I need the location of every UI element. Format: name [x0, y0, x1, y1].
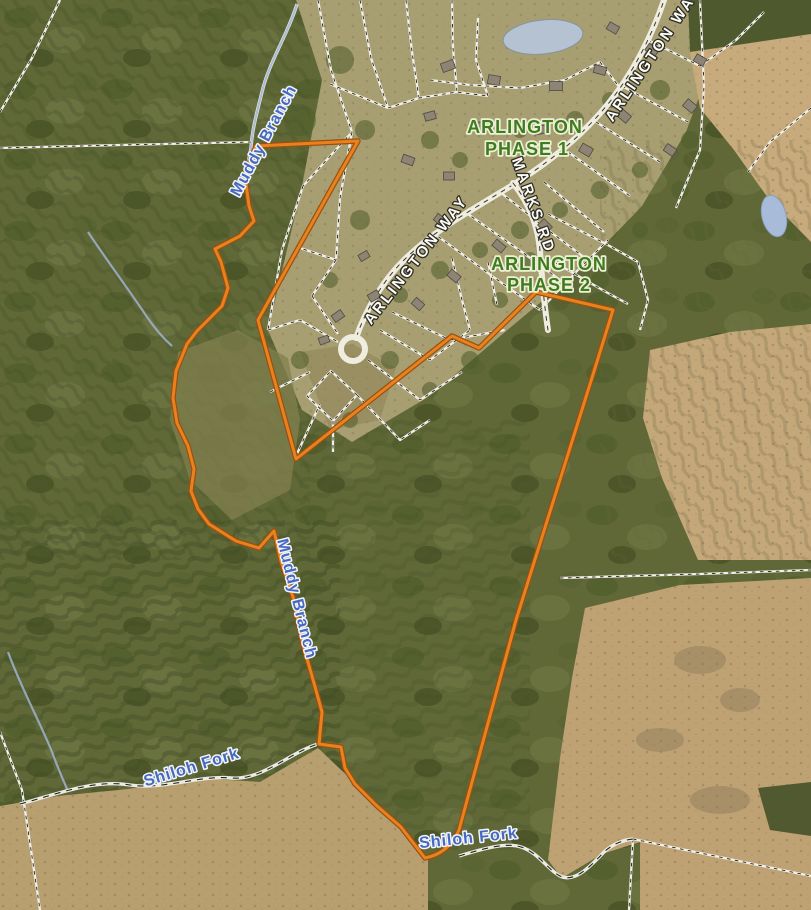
tree-canopy — [681, 131, 699, 149]
tree-canopy — [350, 210, 370, 230]
tree-canopy — [632, 222, 648, 238]
aerial-map[interactable]: ARLINGTON PHASE 1 ARLINGTON PHASE 2 ARLI… — [0, 0, 811, 910]
scrub-patch — [636, 728, 684, 752]
tree-canopy — [650, 80, 670, 100]
tree-canopy — [552, 202, 568, 218]
scrub-patch — [690, 786, 750, 814]
label-arlington-phase2-line2: PHASE 2 — [507, 275, 591, 295]
scrub-patch — [720, 688, 760, 712]
tree-canopy — [355, 120, 375, 140]
tree-canopy — [452, 152, 468, 168]
tree-canopy — [322, 272, 338, 288]
house-roof — [550, 82, 563, 91]
tree-canopy — [381, 351, 399, 369]
tree-canopy — [591, 181, 609, 199]
tree-canopy — [511, 221, 529, 239]
scrub-patch — [674, 646, 726, 674]
tree-canopy — [472, 242, 488, 258]
label-arlington-phase1-line1: ARLINGTON — [467, 117, 583, 137]
label-arlington-phase2-line1: ARLINGTON — [491, 254, 607, 274]
tree-canopy — [632, 162, 648, 178]
house-roof — [444, 172, 455, 180]
tree-canopy — [461, 351, 479, 369]
tree-canopy — [431, 261, 449, 279]
house-roof — [487, 75, 500, 86]
label-arlington-phase1-line2: PHASE 1 — [485, 139, 569, 159]
tree-canopy — [421, 131, 439, 149]
tree-canopy — [291, 351, 309, 369]
